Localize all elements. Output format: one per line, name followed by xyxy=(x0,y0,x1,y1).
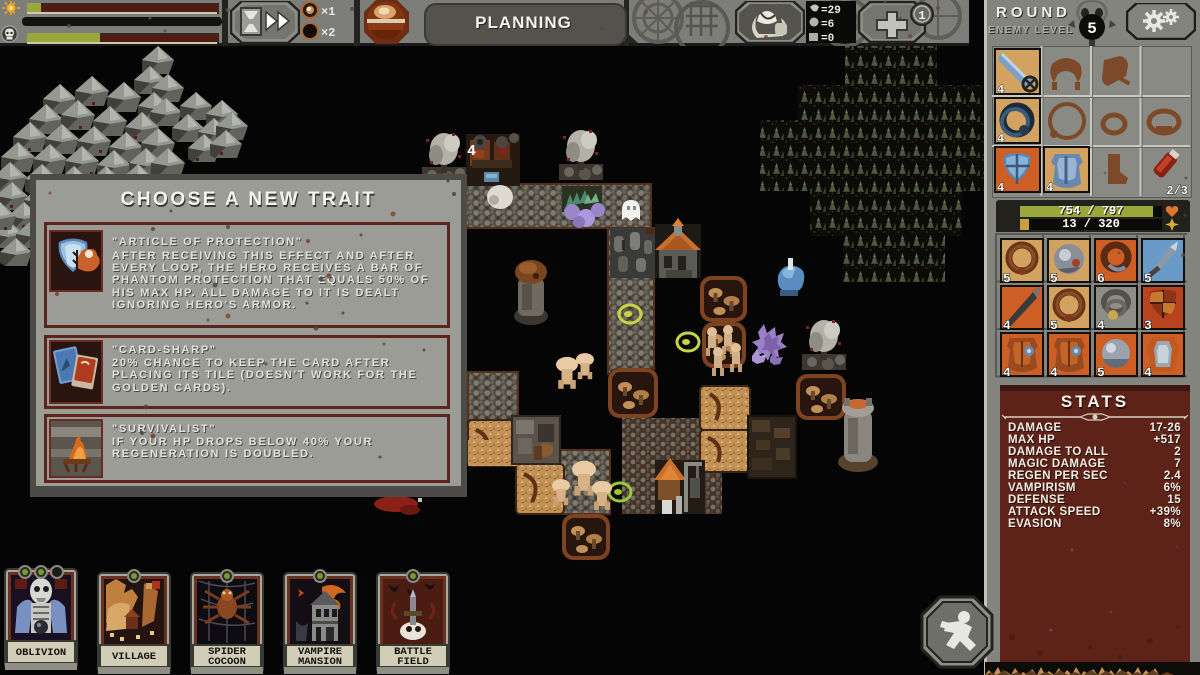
svg-text:×2: ×2 xyxy=(321,26,335,40)
svg-text:OBLIVION: OBLIVION xyxy=(16,647,66,659)
svg-text:5: 5 xyxy=(1050,318,1058,331)
svg-text:=0: =0 xyxy=(821,33,834,43)
svg-text:VILLAGE: VILLAGE xyxy=(112,651,156,663)
svg-text:4: 4 xyxy=(997,132,1004,144)
svg-text:5: 5 xyxy=(1144,271,1152,284)
svg-text:1: 1 xyxy=(918,9,925,23)
svg-text:4: 4 xyxy=(997,83,1004,95)
svg-text:5: 5 xyxy=(1097,365,1105,378)
svg-text:6: 6 xyxy=(1097,271,1105,284)
svg-text:5: 5 xyxy=(1003,271,1011,284)
svg-text:×1: ×1 xyxy=(321,5,335,19)
svg-text:4: 4 xyxy=(1003,365,1011,378)
svg-text:=6: =6 xyxy=(821,19,834,31)
svg-text:5: 5 xyxy=(1087,20,1097,38)
svg-text:4: 4 xyxy=(1144,365,1152,378)
svg-text:=29: =29 xyxy=(821,5,841,17)
svg-text:2/3: 2/3 xyxy=(1166,184,1188,196)
svg-text:FIELD: FIELD xyxy=(397,656,429,668)
svg-text:3: 3 xyxy=(1144,318,1152,331)
svg-text:4: 4 xyxy=(1046,181,1053,193)
svg-text:5: 5 xyxy=(1050,271,1058,284)
svg-text:4: 4 xyxy=(1003,318,1011,331)
svg-text:4: 4 xyxy=(1097,318,1105,331)
svg-text:MANSION: MANSION xyxy=(298,656,342,668)
svg-text:COCOON: COCOON xyxy=(208,656,246,668)
svg-text:4: 4 xyxy=(1050,365,1058,378)
svg-text:4: 4 xyxy=(997,181,1004,193)
